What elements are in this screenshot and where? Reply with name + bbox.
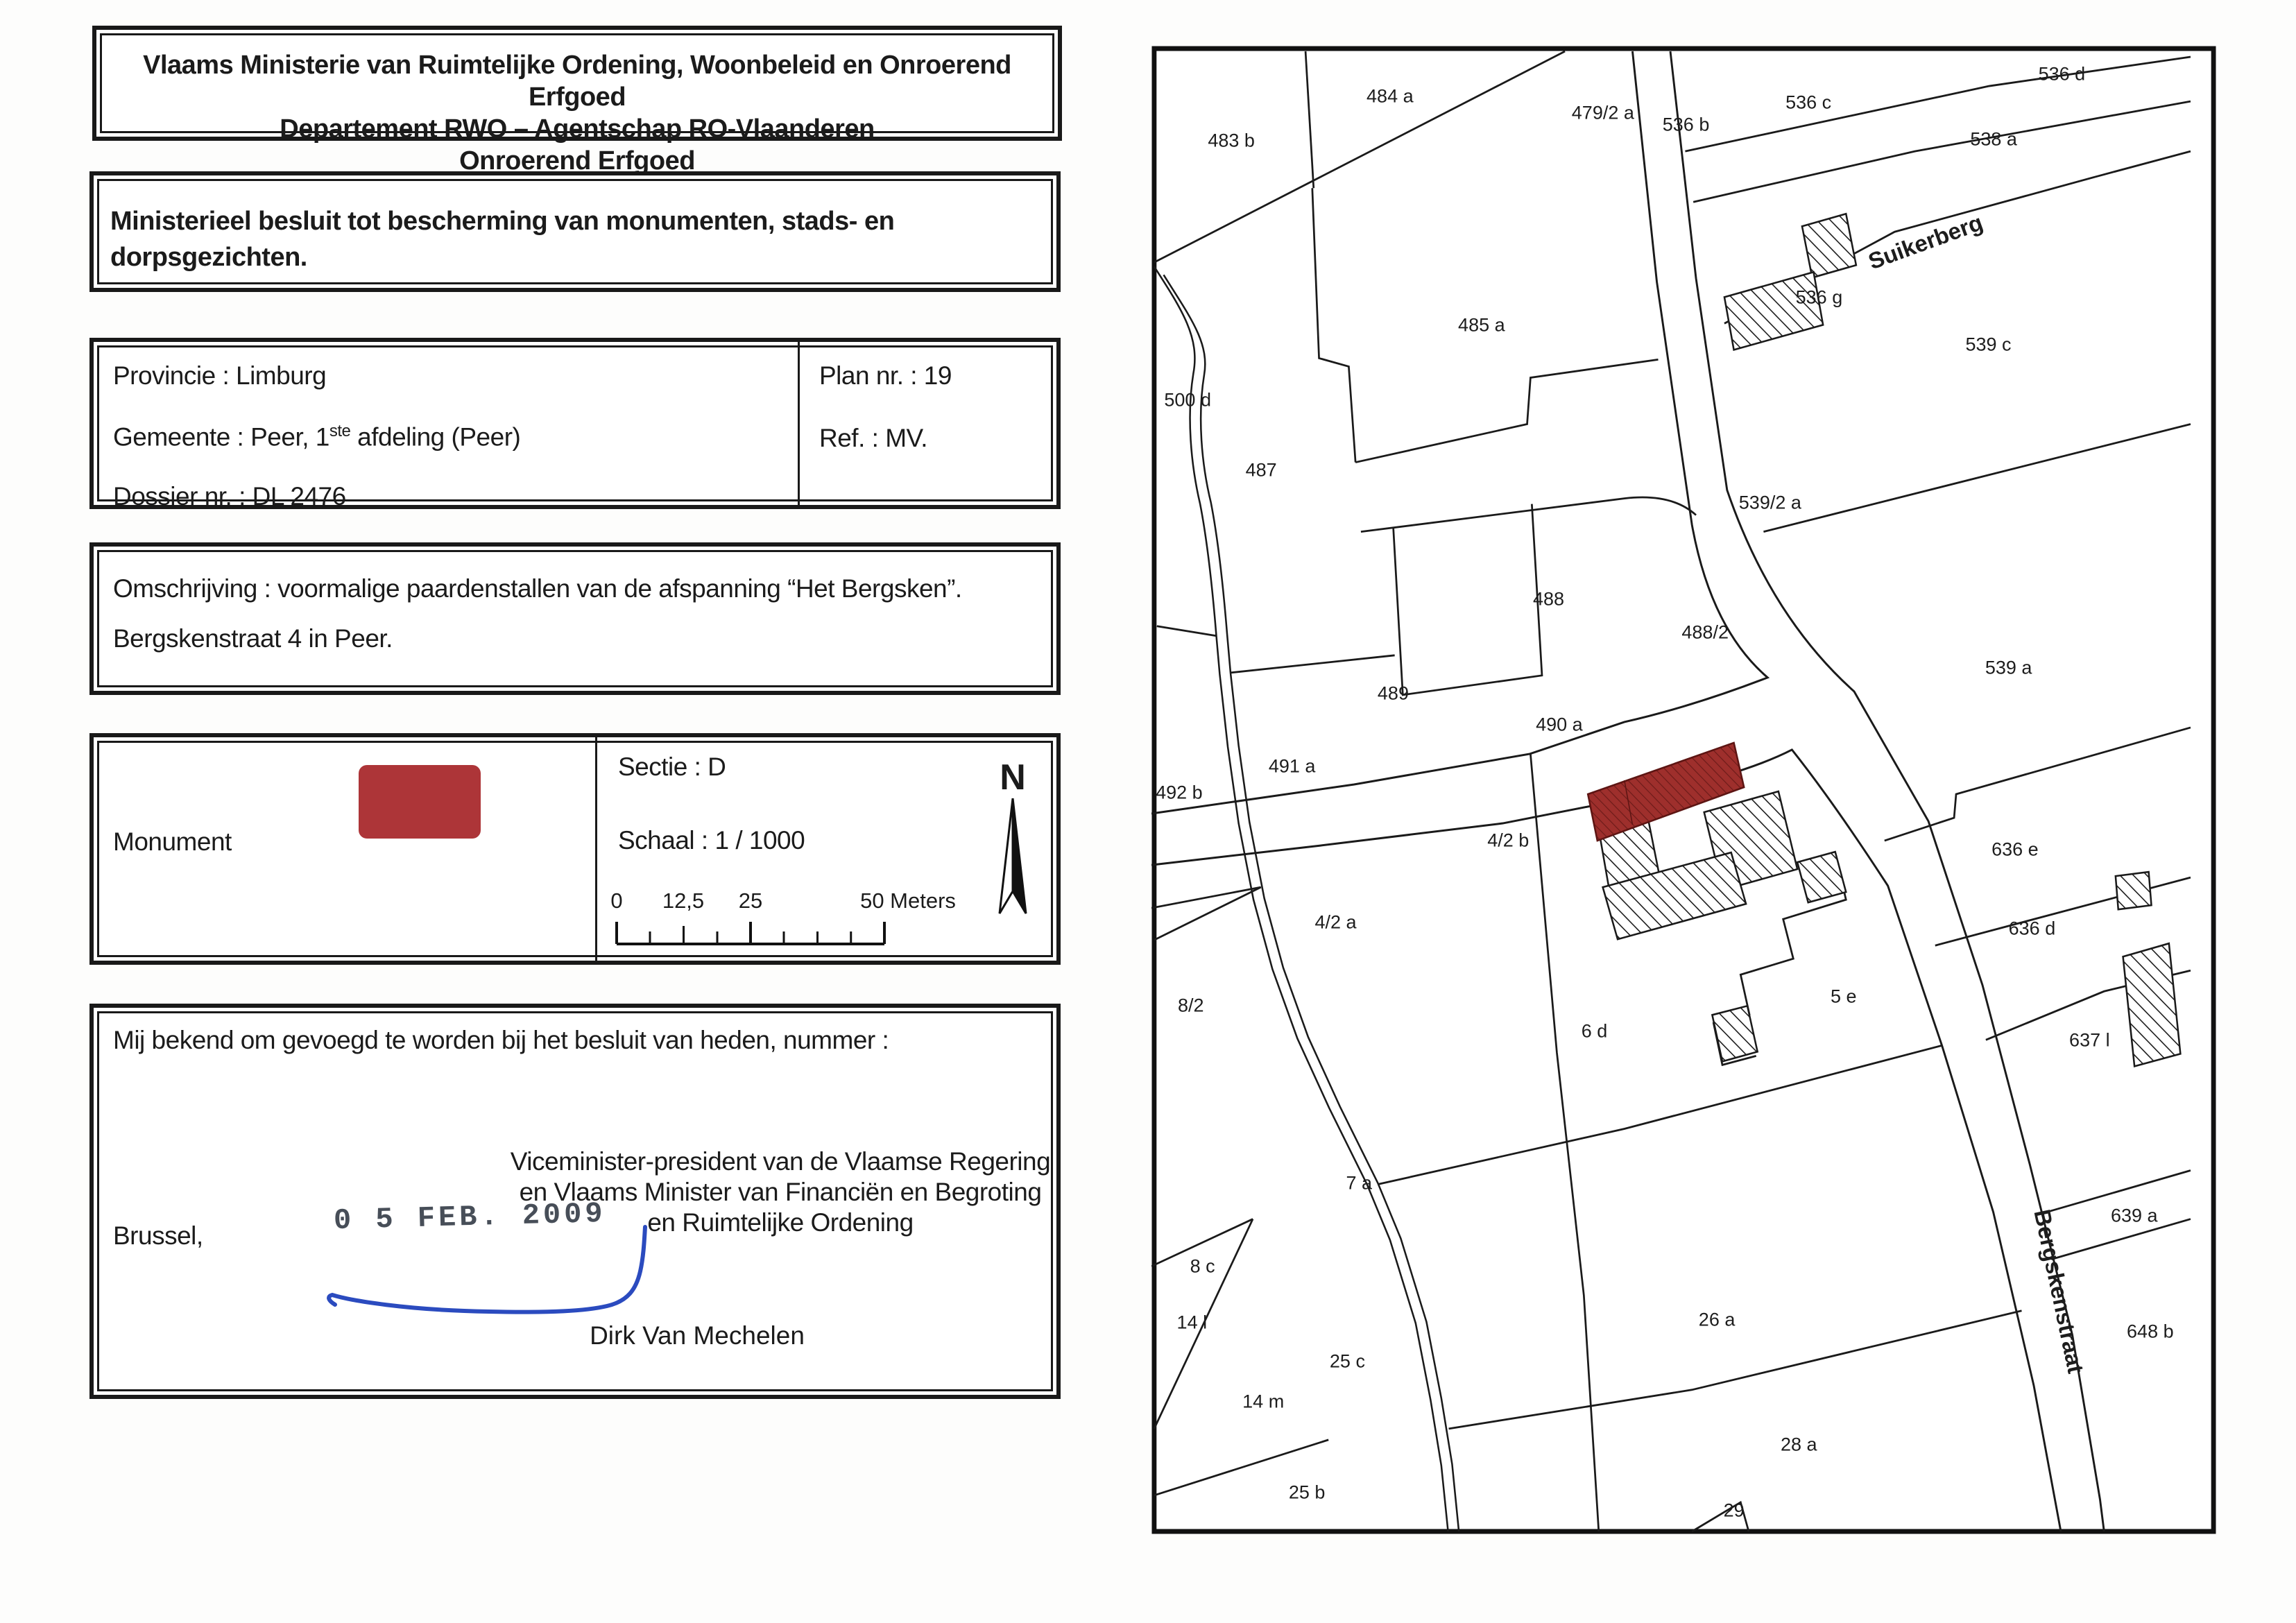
cadastral-map: 483 b484 a479/2 a536 b536 c536 d538 a536… bbox=[1151, 46, 2216, 1534]
parcel-label: 488/2 bbox=[1681, 621, 1729, 643]
parcel-label: 539/2 a bbox=[1739, 492, 1801, 513]
dossier-field: Dossier nr. : DL 2476 bbox=[113, 482, 346, 511]
legend-box: Monument Sectie : D Schaal : 1 / 1000 0 … bbox=[89, 733, 1061, 965]
parcel-label: 538 a bbox=[1970, 129, 2017, 151]
scalebar-label-0: 0 bbox=[610, 888, 622, 913]
parcel-label: 536 b bbox=[1663, 114, 1710, 135]
gemeente-prefix: Gemeente : Peer, 1 bbox=[113, 422, 329, 451]
parcel-label: 648 b bbox=[2127, 1321, 2174, 1343]
scanned-decree-page: Vlaams Ministerie van Ruimtelijke Ordeni… bbox=[0, 0, 2296, 1623]
parcel-label: 487 bbox=[1246, 459, 1277, 481]
building-east-small bbox=[2116, 872, 2152, 909]
ref-field: Ref. : MV. bbox=[819, 424, 927, 453]
omschrijving-line1: Omschrijving : voormalige paardenstallen… bbox=[113, 574, 962, 603]
parcel-label: 536 d bbox=[2039, 63, 2086, 85]
info-box: Provincie : Limburg Gemeente : Peer, 1st… bbox=[89, 338, 1061, 509]
gemeente-suffix: afdeling (Peer) bbox=[350, 422, 520, 451]
signer-name: Dirk Van Mechelen bbox=[482, 1321, 912, 1350]
closing-city: Brussel, bbox=[113, 1221, 203, 1251]
minister-line-1: Viceminister-president van de Vlaamse Re… bbox=[482, 1147, 1079, 1177]
ministry-line-2: Departement RWO – Agentschap RO-Vlaander… bbox=[106, 113, 1048, 145]
parcel-label: 489 bbox=[1378, 682, 1409, 704]
monument-label: Monument bbox=[113, 827, 232, 857]
parcel-label: 636 d bbox=[2009, 918, 2056, 939]
parcel-label: 483 b bbox=[1208, 130, 1255, 152]
parcel-label: 479/2 a bbox=[1572, 102, 1634, 123]
minister-line-2: en Vlaams Minister van Financiën en Begr… bbox=[482, 1177, 1079, 1208]
decree-title-line1: Ministerieel besluit tot bescherming van… bbox=[110, 203, 1047, 239]
parcel-label: 6 d bbox=[1582, 1020, 1608, 1042]
parcel-label: 7 a bbox=[1346, 1172, 1373, 1194]
parcel-label: 8/2 bbox=[1178, 995, 1204, 1017]
parcel-label: 484 a bbox=[1367, 85, 1414, 107]
ministry-header-box: Vlaams Ministerie van Ruimtelijke Ordeni… bbox=[92, 26, 1062, 141]
closing-line1: Mij bekend om gevoegd te worden bij het … bbox=[113, 1026, 889, 1055]
closing-box: Mij bekend om gevoegd te worden bij het … bbox=[89, 1004, 1061, 1399]
scale-bar: 0 12,5 25 50 Meters bbox=[608, 888, 969, 948]
gemeente-field: Gemeente : Peer, 1ste afdeling (Peer) bbox=[113, 422, 520, 452]
parcel-label: 485 a bbox=[1458, 315, 1505, 336]
parcel-label: 490 a bbox=[1536, 714, 1583, 735]
decree-title-box: Ministerieel besluit tot bescherming van… bbox=[89, 171, 1061, 292]
sectie-field: Sectie : D bbox=[618, 753, 726, 782]
parcel-label: 5 e bbox=[1831, 986, 1857, 1008]
parcel-label: 14 l bbox=[1177, 1312, 1208, 1334]
parcel-label: 500 d bbox=[1164, 389, 1211, 411]
scalebar-label-50m: 50 Meters bbox=[860, 888, 956, 913]
signature bbox=[323, 1223, 683, 1327]
parcel-label: 26 a bbox=[1699, 1309, 1736, 1330]
scalebar-label-12-5: 12,5 bbox=[662, 888, 704, 913]
provincie-field: Provincie : Limburg bbox=[113, 361, 326, 390]
north-arrow: N bbox=[988, 757, 1037, 937]
schaal-field: Schaal : 1 / 1000 bbox=[618, 826, 805, 855]
parcel-label: 14 m bbox=[1242, 1391, 1284, 1413]
parcel-label: 639 a bbox=[2111, 1205, 2158, 1226]
parcel-label: 25 b bbox=[1289, 1482, 1326, 1503]
building-536g-upper bbox=[1802, 214, 1856, 277]
parcel-label: 25 c bbox=[1330, 1351, 1365, 1373]
parcel-label: 28 a bbox=[1781, 1434, 1817, 1456]
parcel-label: 488 bbox=[1533, 589, 1564, 610]
parcel-label: 4/2 a bbox=[1315, 911, 1357, 933]
ministry-line-1: Vlaams Ministerie van Ruimtelijke Ordeni… bbox=[106, 49, 1048, 113]
north-label: N bbox=[988, 757, 1037, 798]
parcel-label: 637 l bbox=[2069, 1029, 2110, 1051]
scalebar-ruler bbox=[608, 916, 969, 948]
parcel-label: 29 bbox=[1724, 1500, 1745, 1521]
parcel-label: 536 c bbox=[1785, 92, 1831, 113]
info-box-divider bbox=[798, 342, 800, 505]
parcel-label: 491 a bbox=[1269, 755, 1316, 777]
parcel-label: 492 b bbox=[1156, 782, 1203, 804]
north-arrow-icon bbox=[988, 797, 1037, 936]
parcel-label: 539 a bbox=[1985, 658, 2032, 679]
parcel-label: 636 e bbox=[1991, 839, 2039, 860]
parcel-label: 8 c bbox=[1190, 1255, 1215, 1277]
description-box: Omschrijving : voormalige paardenstallen… bbox=[89, 542, 1061, 695]
monument-color-swatch bbox=[359, 765, 481, 839]
parcel-label: 539 c bbox=[1965, 334, 2011, 356]
parcel-label: 536 g bbox=[1796, 286, 1843, 308]
scalebar-label-25: 25 bbox=[739, 888, 762, 913]
gemeente-sup: ste bbox=[329, 422, 351, 440]
plan-field: Plan nr. : 19 bbox=[819, 361, 952, 390]
decree-title-line2: dorpsgezichten. bbox=[110, 239, 1047, 275]
legend-right-cell: Sectie : D Schaal : 1 / 1000 0 12,5 25 5… bbox=[597, 737, 1056, 961]
omschrijving-line2: Bergskenstraat 4 in Peer. bbox=[113, 624, 393, 653]
parcel-label: 4/2 b bbox=[1487, 830, 1529, 851]
